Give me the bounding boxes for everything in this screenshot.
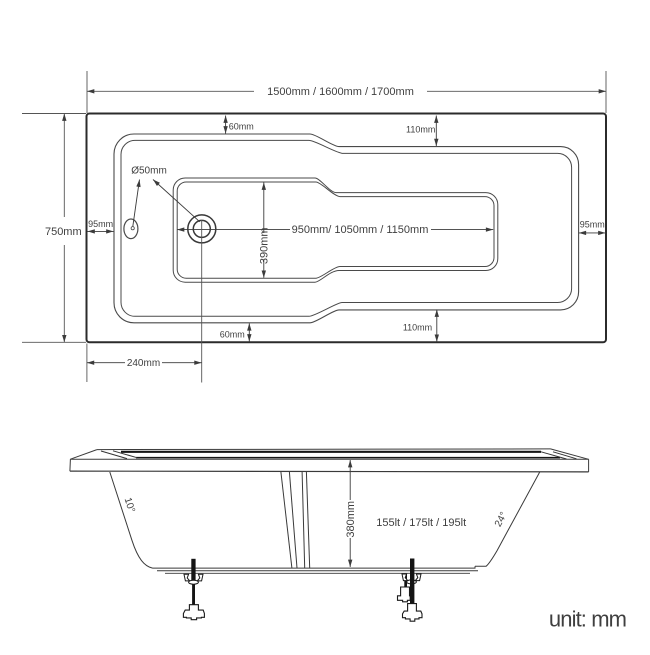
svg-text:95mm: 95mm [88,219,113,229]
svg-text:380mm: 380mm [345,501,357,538]
svg-text:60mm: 60mm [220,329,245,339]
svg-text:750mm: 750mm [45,226,82,238]
svg-text:950mm/ 1050mm / 1150mm: 950mm/ 1050mm / 1150mm [292,224,429,236]
svg-text:110mm: 110mm [406,124,435,134]
svg-text:110mm: 110mm [403,323,432,333]
svg-text:60mm: 60mm [229,121,254,131]
svg-text:95mm: 95mm [580,220,605,230]
svg-text:155lt / 175lt / 195lt: 155lt / 175lt / 195lt [376,517,466,529]
svg-text:Ø50mm: Ø50mm [131,165,167,176]
svg-text:390mm: 390mm [259,227,271,264]
svg-text:unit: mm: unit: mm [549,607,626,632]
svg-text:1500mm / 1600mm / 1700mm: 1500mm / 1600mm / 1700mm [267,86,414,98]
svg-text:240mm: 240mm [127,358,160,369]
